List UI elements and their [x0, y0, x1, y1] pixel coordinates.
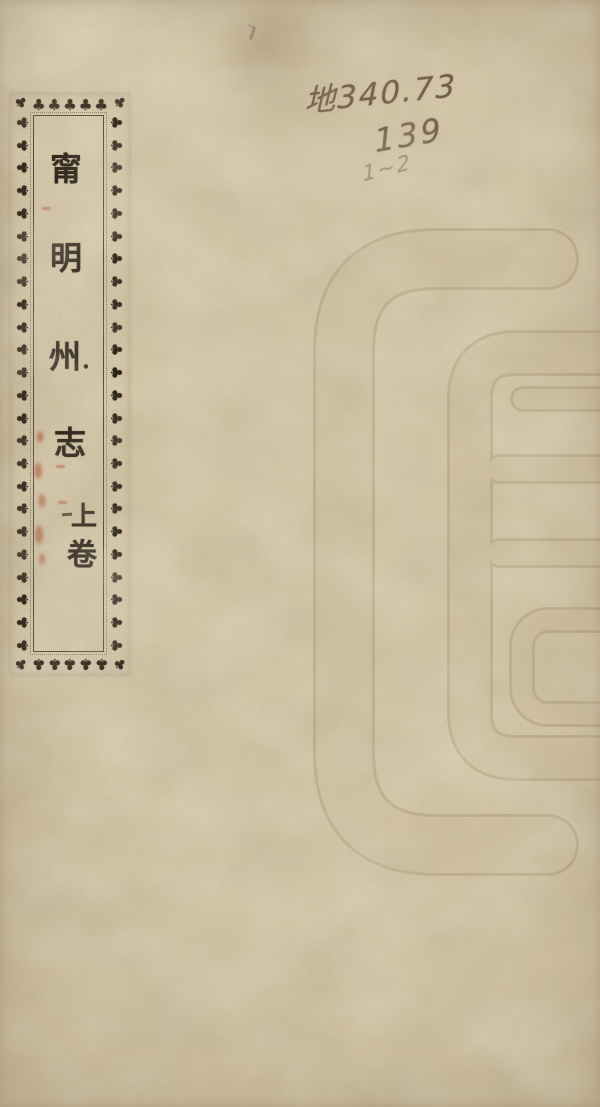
ornament-glyph: ♣: [108, 275, 123, 288]
ornament-glyph: ♣: [16, 184, 31, 197]
volume-char-1: 上: [71, 504, 97, 530]
ornament-glyph: ♣: [108, 389, 123, 402]
label-ornament-border-top: ♣♣♣♣♣: [32, 96, 108, 114]
ornament-glyph: ♣: [108, 480, 123, 493]
ornament-glyph: ♣: [108, 366, 123, 379]
ornament-glyph: ♣: [16, 616, 31, 629]
ornament-glyph: ♣: [48, 656, 61, 671]
ornament-glyph: ♣: [16, 411, 31, 424]
ornament-glyph: ♣: [48, 98, 61, 113]
title-label: ♣ ♣ ♣ ♣ ♣♣♣♣♣ ♣♣♣♣♣ ♣♣♣♣♣♣♣♣♣♣♣♣♣♣♣♣♣♣♣♣…: [10, 93, 130, 675]
title-char-4: 志: [54, 427, 86, 459]
book-cover: 地340.73 139 1~2 ♣ ♣ ♣ ♣ ♣♣♣♣♣ ♣♣♣♣♣ ♣♣♣♣…: [0, 0, 600, 1107]
separator-dot: ·: [82, 356, 90, 378]
ornament-glyph: ♣: [16, 229, 31, 242]
ornament-glyph: ♣: [108, 298, 123, 311]
ornament-glyph: ♣: [16, 525, 31, 538]
ornament-glyph: ♣: [16, 434, 31, 447]
ornament-glyph: ♣: [16, 639, 31, 652]
ornament-glyph: ♣: [16, 389, 31, 402]
red-speck: [56, 465, 65, 468]
ornament-glyph: ♣: [32, 656, 45, 671]
ornament-glyph: ♣: [16, 252, 31, 265]
ornament-glyph: ♣: [108, 252, 123, 265]
ornament-glyph: ♣: [108, 457, 123, 470]
ornament-glyph: ♣: [63, 656, 76, 671]
ornament-glyph: ♣: [32, 98, 45, 113]
ornament-glyph: ♣: [16, 343, 31, 356]
ornament-glyph: ♣: [108, 116, 123, 129]
ornament-glyph: ♣: [63, 98, 76, 113]
ornament-glyph: ♣: [16, 570, 31, 583]
ornament-glyph: ♣: [108, 207, 123, 220]
ornament-glyph: ♣: [16, 320, 31, 333]
ornament-glyph: ♣: [16, 366, 31, 379]
ornament-glyph: ♣: [108, 593, 123, 606]
volume-char-2: 卷: [67, 541, 97, 571]
label-corner-ornament: ♣: [11, 94, 30, 113]
label-ornament-border-right: ♣♣♣♣♣♣♣♣♣♣♣♣♣♣♣♣♣♣♣♣♣♣♣♣: [106, 115, 126, 653]
ornament-glyph: ♣: [108, 411, 123, 424]
ornament-glyph: ♣: [108, 343, 123, 356]
ornament-glyph: ♣: [108, 548, 123, 561]
ornament-glyph: ♣: [108, 502, 123, 515]
title-char-2: 明: [50, 242, 82, 274]
label-corner-ornament: ♣: [110, 656, 129, 675]
ornament-glyph: ♣: [16, 116, 31, 129]
ornament-glyph: ♣: [16, 480, 31, 493]
label-ornament-border-left: ♣♣♣♣♣♣♣♣♣♣♣♣♣♣♣♣♣♣♣♣♣♣♣♣: [14, 115, 34, 653]
label-ornament-border-bottom: ♣♣♣♣♣: [32, 654, 108, 672]
ornament-glyph: ♣: [108, 320, 123, 333]
ornament-glyph: ♣: [16, 139, 31, 152]
ornament-glyph: ♣: [16, 161, 31, 174]
ornament-glyph: ♣: [108, 229, 123, 242]
label-corner-ornament: ♣: [11, 656, 30, 675]
ornament-glyph: ♣: [79, 656, 92, 671]
title-char-1: 甯: [50, 153, 82, 185]
red-seal-smudge: [32, 423, 49, 569]
ornament-glyph: ♣: [95, 656, 108, 671]
ornament-glyph: ♣: [108, 639, 123, 652]
ornament-glyph: ♣: [16, 207, 31, 220]
ornament-glyph: ♣: [95, 98, 108, 113]
ornament-glyph: ♣: [16, 593, 31, 606]
ornament-glyph: ♣: [79, 98, 92, 113]
ornament-glyph: ♣: [108, 616, 123, 629]
ornament-glyph: ♣: [108, 570, 123, 583]
ornament-glyph: ♣: [108, 161, 123, 174]
ornament-glyph: ♣: [16, 502, 31, 515]
ornament-glyph: ♣: [16, 457, 31, 470]
ornament-glyph: ♣: [16, 275, 31, 288]
ornament-glyph: ♣: [108, 434, 123, 447]
ornament-glyph: ♣: [108, 525, 123, 538]
title-char-3: 州: [49, 341, 81, 373]
ornament-glyph: ♣: [16, 548, 31, 561]
ornament-glyph: ♣: [108, 184, 123, 197]
ornament-glyph: ♣: [108, 139, 123, 152]
ornament-glyph: ♣: [16, 298, 31, 311]
label-corner-ornament: ♣: [110, 94, 129, 113]
